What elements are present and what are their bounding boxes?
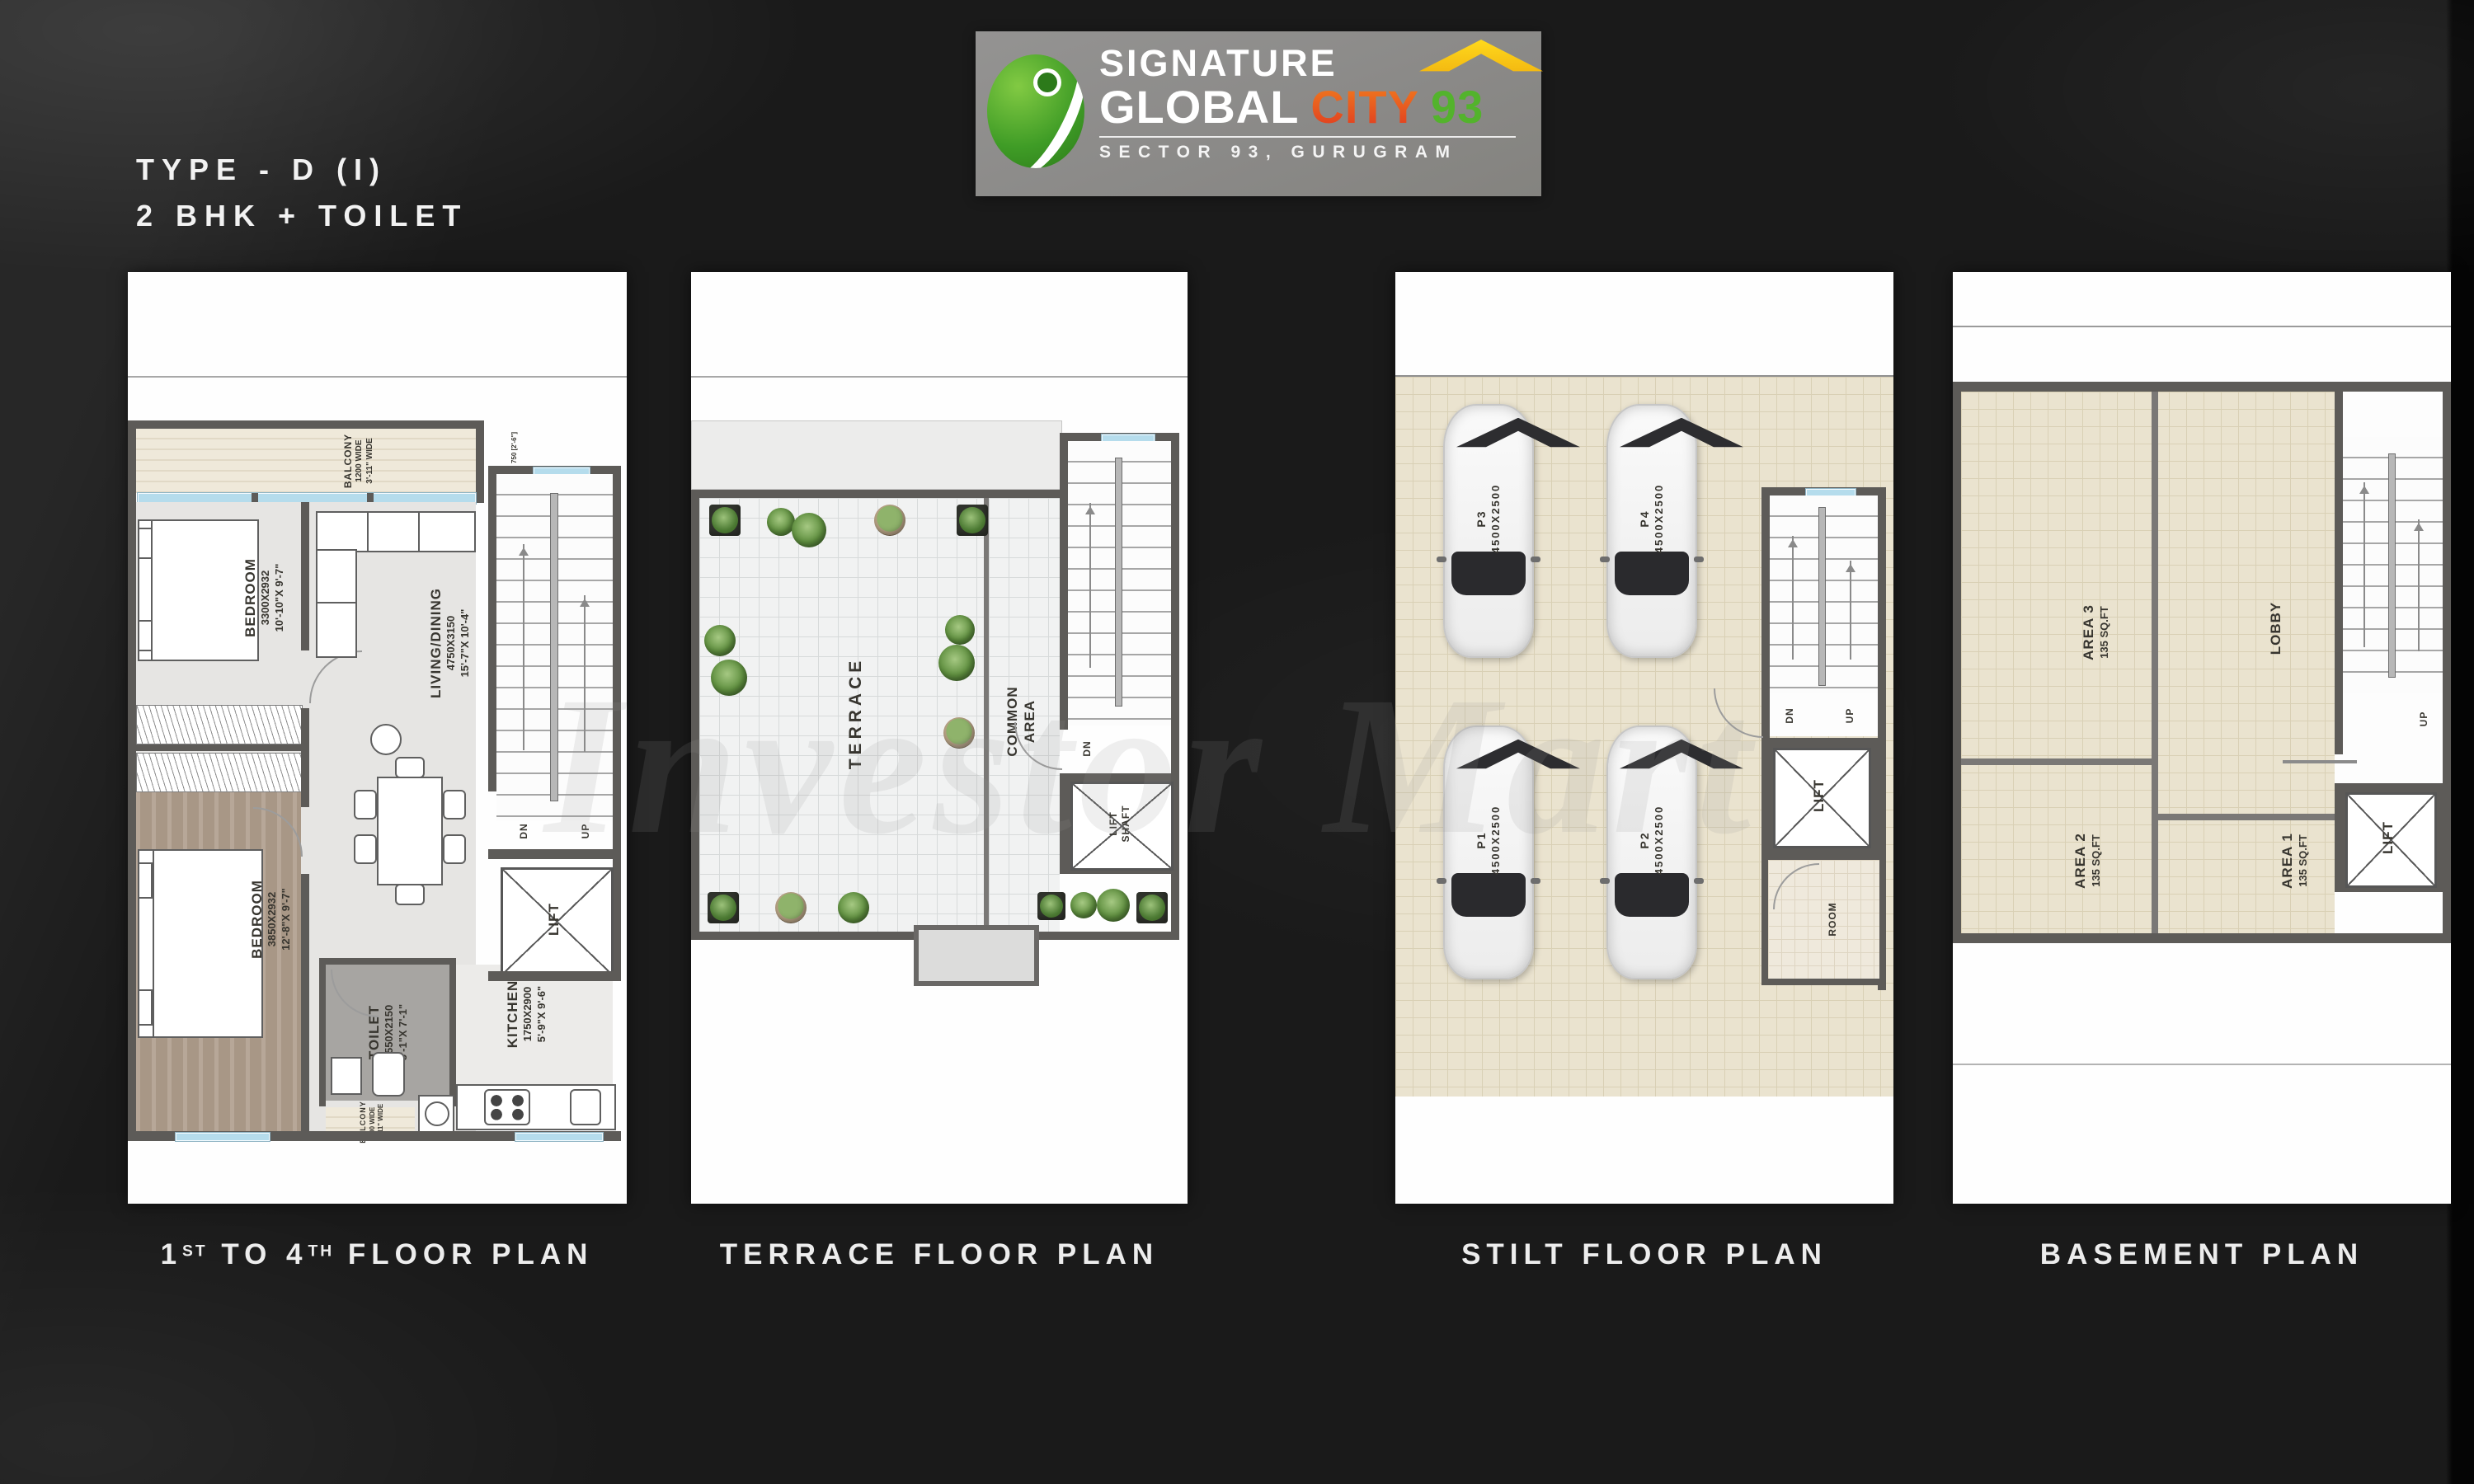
stair-arrow [523,544,524,750]
plants-layer [691,272,1188,1204]
plant-icon [943,717,975,749]
pillow [138,528,153,559]
plant-icon [792,513,826,547]
stair-arrow [584,595,586,752]
logo: SIGNATURE GLOBAL CITY 93 SECTOR 93, GURU… [976,31,1541,196]
floor-plan-drawing: BALCONY 1200 WIDE 3'-11" WIDE 750 [2'-6"… [128,272,627,1204]
parking-label-p4: P4 4500X2500 [1623,457,1681,580]
living-dining-label: LIVING/DINING 4750X3150 15'-7"X 10'-4" [400,585,499,701]
lift-label: LIFT [2363,813,2413,862]
wardrobe [136,753,303,792]
plant-icon [945,615,975,645]
chair [443,790,466,819]
car-p2: P2 4500X2500 [1602,724,1702,981]
up-label: UP [569,810,602,852]
plant-icon [711,660,747,696]
plant-icon [708,892,739,923]
page-title: TYPE - D (I) 2 BHK + TOILET [136,147,468,239]
panel-stilt-plan: P3 4500X2500 P4 4500X2500 P1 4500X2500 [1395,272,1893,1204]
chair [395,884,425,905]
plant-icon [838,892,869,923]
area3-label: AREA 3 135 SQ.FT [2050,587,2141,678]
lobby-label: LOBBY [2231,587,2321,669]
brochure-page: TYPE - D (I) 2 BHK + TOILET SIGNATURE GL… [0,0,2474,1484]
caption-floor-plan: 1ST TO 4TH FLOOR PLAN [88,1238,666,1271]
room-label: ROOM [1799,895,1865,944]
lift-label: LIFT [1794,771,1844,820]
parking-label-p3: P3 4500X2500 [1460,457,1517,580]
plant-icon [775,892,807,923]
type-subtitle: 2 BHK + TOILET [136,193,468,239]
small-balcony-label: BALCONY 900 WIDE 2'-11" WIDE [353,1089,391,1155]
parking-label-p2: P2 4500X2500 [1623,778,1681,902]
washing-machine [418,1095,454,1134]
dining-table [377,777,443,885]
plant-icon [938,645,975,681]
sofa-chaise [316,549,357,658]
up-label: UP [2406,700,2442,738]
plant-icon [1097,889,1130,922]
basement-plan-drawing: AREA 3 135 SQ.FT LOBBY AREA 2 135 SQ.FT … [1953,272,2451,1204]
stilt-plan-drawing: P3 4500X2500 P4 4500X2500 P1 4500X2500 [1395,272,1893,1204]
stair-rail [550,493,558,801]
chair [395,757,425,778]
logo-divider [1099,136,1516,138]
stair-arrow [2363,482,2365,647]
chair [354,834,377,864]
side-table [370,724,402,755]
stove [484,1089,530,1125]
chair [354,790,377,819]
plant-icon [1136,892,1168,923]
window-strip [515,1133,603,1141]
plant-icon [704,625,736,656]
terrace-plan-drawing: TERRACE COMMON AREA DN LIFT SHAF [691,272,1188,1204]
logo-text: SIGNATURE GLOBAL CITY 93 SECTOR 93, GURU… [1099,43,1528,162]
sofa [316,511,476,552]
sink [570,1089,601,1125]
stair-arrow [1850,561,1851,660]
balcony-top-label: BALCONY 1200 WIDE 3'-11" WIDE [324,425,393,496]
lift-label: LIFT [529,895,579,944]
plant-icon [709,505,741,536]
threshold [2283,760,2357,763]
area2-label: AREA 2 135 SQ.FT [2042,815,2133,906]
logo-word-city: CITY [1310,84,1419,130]
logo-word-row: GLOBAL CITY 93 [1099,84,1528,130]
plant-icon [874,505,905,536]
pillow [138,862,153,899]
bedroom1-label: BEDROOM 3300X2932 10'-10"X 9'-7" [219,544,309,651]
logo-word-global: GLOBAL [1099,84,1299,130]
caption-stilt-plan: STILT FLOOR PLAN [1356,1238,1933,1271]
dn-label: DN [1773,697,1806,735]
logo-tagline: SECTOR 93, GURUGRAM [1099,143,1528,162]
caption-basement-plan: BASEMENT PLAN [1913,1238,2474,1271]
panel-terrace-plan: TERRACE COMMON AREA DN LIFT SHAF [691,272,1188,1204]
panel-basement-plan: AREA 3 135 SQ.FT LOBBY AREA 2 135 SQ.FT … [1953,272,2451,1204]
logo-word-93: 93 [1431,84,1484,130]
up-label: UP [1833,697,1866,735]
panel-floor-plan: BALCONY 1200 WIDE 3'-11" WIDE 750 [2'-6"… [128,272,627,1204]
stair-rail [1818,507,1826,686]
car-p3: P3 4500X2500 [1438,402,1539,660]
stair-arrow [2418,519,2420,651]
plant-icon [1037,892,1065,920]
plant-icon [957,505,988,536]
wardrobe [136,705,303,744]
dn-label: DN [507,810,540,852]
pillow [138,620,153,651]
plant-icon [1070,892,1097,918]
car-p1: P1 4500X2500 [1438,724,1539,981]
area1-label: AREA 1 135 SQ.FT [2249,815,2340,906]
pillow [138,989,153,1026]
stair-arrow [1792,536,1794,660]
balcony-floor [136,429,476,493]
caption-terrace-plan: TERRACE FLOOR PLAN [651,1238,1228,1271]
plant-icon [767,508,795,536]
parking-label-p1: P1 4500X2500 [1460,778,1517,902]
signature-global-leaf-icon [987,54,1084,168]
car-p4: P4 4500X2500 [1602,402,1702,660]
stair-rail [2388,453,2396,678]
washer-drum [425,1101,449,1126]
window-strip [176,1133,270,1141]
type-title: TYPE - D (I) [136,147,468,193]
chair [443,834,466,864]
